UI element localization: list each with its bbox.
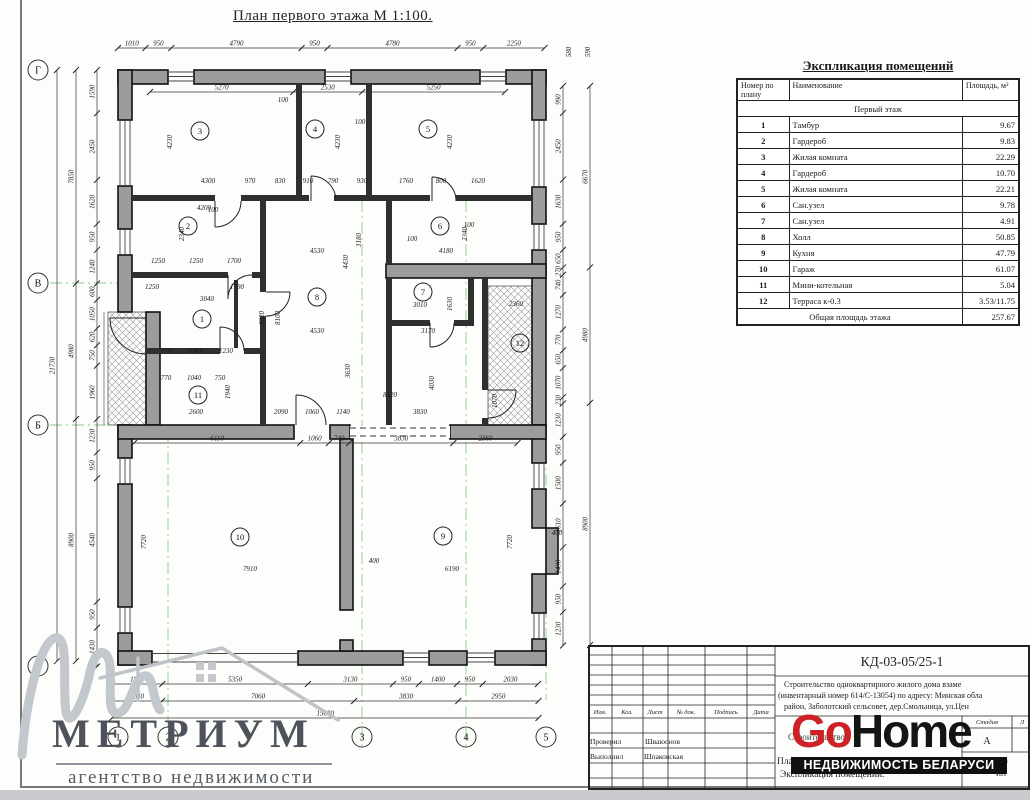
dim-label: 1050	[89, 307, 97, 322]
dim-label: 750	[89, 350, 97, 361]
dim-label: 100	[407, 235, 418, 243]
project-desc-line2: (инвентарный номер 614/С-13054) по адрес…	[778, 691, 983, 700]
dim-label: 8900	[68, 533, 76, 548]
table-row: 11Мини-котельная5.04	[737, 277, 1019, 293]
gohome-go-text: Go	[791, 705, 851, 757]
dim-label: 2340	[461, 227, 469, 242]
table-row: 2Гардероб9.83	[737, 133, 1019, 149]
dim-label: 950	[89, 460, 97, 471]
dim-label: 990	[555, 94, 563, 105]
dim-label: 4530	[310, 327, 325, 335]
dim-label: 4	[464, 733, 469, 744]
dim-label: 770	[555, 334, 563, 345]
dim-label: 7720	[140, 535, 148, 550]
dim-label: 2450	[555, 139, 563, 154]
dim-label: 8900	[582, 516, 590, 531]
dim-label: 6110	[210, 435, 224, 443]
dim-label: 740	[555, 279, 563, 290]
dim-label: 1250	[145, 283, 160, 291]
dim-label: 650	[555, 253, 563, 264]
dim-label: 1040	[187, 374, 202, 382]
table-row: 1Тамбур9.67	[737, 117, 1019, 133]
dim-label: 1790	[230, 283, 245, 291]
section-row: Первый этаж	[737, 101, 1019, 117]
dim-label: 6	[438, 221, 442, 231]
dim-label: 1250	[151, 257, 166, 265]
dim-label: 970	[245, 177, 256, 185]
dim-label: 5	[544, 733, 549, 744]
dim-label: Г	[35, 66, 41, 77]
table-row: 8Холл50.85	[737, 229, 1019, 245]
dim-label: 1010	[125, 40, 140, 48]
dim-label: 800	[436, 177, 447, 185]
dim-label: 270	[555, 265, 563, 276]
explication-title: Экспликация помещений	[736, 58, 1020, 74]
dim-label: 950	[89, 231, 97, 242]
stamp-header-izm: Изм.	[593, 709, 607, 716]
dim-label: 400	[369, 557, 380, 565]
stage-label: Стадия	[976, 719, 998, 726]
sheet-label: Л	[1019, 719, 1025, 726]
dim-label: 2530	[321, 84, 336, 92]
dim-label: 2090	[274, 408, 289, 416]
dim-label: 3	[198, 126, 202, 136]
dim-label: 3820	[258, 311, 266, 327]
dim-label: 8120	[383, 391, 398, 399]
dim-label: 4430	[342, 255, 350, 270]
windows	[120, 72, 544, 662]
dim-label: 3180	[355, 233, 363, 249]
stamp-header-sign: Подпись	[713, 709, 738, 716]
dim-label: 8100	[274, 311, 282, 326]
dim-label: 4530	[310, 247, 325, 255]
dim-label: 750	[215, 374, 226, 382]
dim-label: 4	[313, 124, 318, 134]
table-row: 10Гараж61.07	[737, 261, 1019, 277]
stamp-header-kol: Кол.	[620, 709, 633, 716]
dim-label: 3010	[412, 301, 428, 309]
dim-label: 4200	[197, 204, 212, 212]
dim-label: 930	[357, 177, 368, 185]
dim-label: 2950	[491, 693, 506, 701]
dim-label: 1250	[189, 257, 204, 265]
dim-label: 6190	[445, 565, 460, 573]
dim-label: 3830	[412, 408, 428, 416]
dim-label: Б	[35, 421, 41, 432]
dim-label: 950	[555, 231, 563, 242]
table-row: 12Терраса к-0.33.53/11.75	[737, 293, 1019, 309]
dim-label: 2360	[478, 435, 493, 443]
stamp-made-name: Шпаковская	[644, 752, 684, 761]
dim-label: 3630	[344, 364, 352, 380]
dim-label: 7910	[243, 565, 258, 573]
stamp-made-label: Выполнил	[590, 752, 623, 761]
dim-label: 4980	[68, 344, 76, 359]
dim-label: 1230	[555, 413, 563, 428]
dim-label: 2	[186, 221, 190, 231]
dim-label: 100	[278, 96, 289, 104]
dim-label: 11	[194, 390, 202, 400]
dim-label: 4030	[428, 376, 436, 391]
dim-label: 6670	[582, 169, 590, 184]
dim-label: 1070	[491, 394, 499, 409]
drawing-sheet: План первого этажа М 1:100.	[0, 0, 1030, 800]
dim-label: 1240	[89, 259, 97, 274]
dim-label: 770	[161, 347, 172, 355]
dim-label: 12	[516, 338, 525, 348]
dim-label: 4300	[201, 177, 216, 185]
dim-label: 1500	[555, 476, 563, 491]
dim-label: 1	[200, 314, 204, 324]
gohome-tagline: НЕДВИЖИМОСТЬ БЕЛАРУСИ	[791, 757, 1007, 774]
dim-label: В	[35, 279, 42, 290]
col-header-number: Номер по плану	[737, 79, 789, 101]
dim-label: 590	[584, 46, 592, 57]
dim-label: 1060	[308, 435, 323, 443]
dim-label: 2600	[189, 408, 204, 416]
stamp-header-list: Лист	[646, 709, 663, 716]
dim-label: 1960	[89, 385, 97, 400]
dim-label: 5	[426, 124, 430, 134]
door-swings	[110, 176, 516, 425]
dim-label: 7	[421, 287, 425, 297]
col-header-area: Площадь, м²	[962, 79, 1019, 101]
dim-label: 8	[315, 292, 319, 302]
dim-label: 230	[555, 395, 563, 406]
table-row: 3Жилая комната22.29	[737, 149, 1019, 165]
stamp-checked-label: Проверил	[590, 737, 622, 746]
dim-label: 4230	[166, 135, 174, 150]
project-desc-line1: Строительство одноквартирного жилого дом…	[784, 680, 962, 689]
dim-label: 1230	[89, 428, 97, 443]
dim-label: 950	[555, 444, 563, 455]
dim-label: 910	[303, 177, 314, 185]
dim-label: 950	[465, 676, 476, 684]
dim-label: 7850	[68, 169, 76, 184]
dim-label: 5250	[427, 84, 442, 92]
dim-label: 2360	[509, 300, 524, 308]
dim-label: 3830	[398, 693, 414, 701]
dim-label: 4180	[439, 247, 454, 255]
dim-label: 740	[334, 435, 345, 443]
gohome-home-text: Home	[851, 705, 971, 757]
stamp-header-date: Дата	[752, 709, 768, 716]
metrium-divider	[56, 763, 332, 765]
dim-label: 1060	[305, 408, 320, 416]
dim-label: 1040	[187, 347, 202, 355]
dim-label: 1760	[399, 177, 414, 185]
dim-label: 4980	[582, 328, 590, 343]
table-row: 5Жилая комната22.21	[737, 181, 1019, 197]
dim-label: 4780	[385, 40, 400, 48]
gohome-logo: GoHome	[791, 708, 971, 754]
dim-label: 1230	[555, 621, 563, 636]
dim-label: 650	[555, 353, 563, 364]
stamp-checked-name: Шваюонов	[645, 737, 680, 746]
dim-label: 2450	[89, 139, 97, 154]
dim-label: 620	[89, 331, 97, 342]
dim-label: 10	[236, 532, 245, 542]
dim-label: 950	[555, 593, 563, 604]
metrium-logo-text: МЕТРИУМ	[52, 710, 315, 757]
dim-label: 1270	[555, 305, 563, 320]
stage-value: А	[983, 736, 991, 747]
dim-label: 1940	[224, 385, 232, 400]
dim-label: 950	[153, 40, 164, 48]
dim-label: 1630	[446, 297, 454, 312]
table-header-row: Номер по плану Наименование Площадь, м²	[737, 79, 1019, 101]
table-row: 4Гардероб10.70	[737, 165, 1019, 181]
dim-label: 1400	[431, 676, 446, 684]
dim-label: 950	[465, 40, 476, 48]
table-row: 7Сан.узел4.91	[737, 213, 1019, 229]
table-row: 6Сан.узел9.78	[737, 197, 1019, 213]
dim-label: 1070	[555, 375, 563, 390]
dim-label: 950	[401, 676, 412, 684]
stamp-header-doc: № док.	[676, 709, 696, 716]
dim-label: 1630	[555, 194, 563, 209]
dim-label: 1230	[219, 347, 234, 355]
dim-label: 1620	[89, 194, 97, 209]
dim-label: 21730	[49, 356, 57, 374]
dim-label: 3830	[393, 435, 409, 443]
explication-table: Номер по плану Наименование Площадь, м² …	[736, 78, 1020, 326]
metrium-subtitle: агентство недвижимости	[68, 767, 314, 789]
dim-label: 3170	[420, 327, 436, 335]
dim-label: 4230	[334, 135, 342, 150]
doc-number: КД-03-05/25-1	[861, 654, 944, 669]
dim-label: 400	[552, 529, 563, 537]
dim-label: 2030	[503, 676, 518, 684]
total-row: Общая площадь этажа 257.67	[737, 309, 1019, 326]
dim-label: 950	[309, 40, 320, 48]
dim-label: 770	[161, 374, 172, 382]
dim-label: 1430	[555, 559, 563, 574]
col-header-name: Наименование	[789, 79, 962, 101]
porch-hatch	[104, 312, 146, 425]
dim-label: 4540	[89, 533, 97, 548]
dim-label: 1140	[336, 408, 350, 416]
dim-label: 3040	[199, 295, 215, 303]
dim-label: 1590	[89, 84, 97, 99]
dim-label: 9	[441, 531, 445, 541]
dim-label: 4230	[446, 135, 454, 150]
dim-label: 100	[355, 118, 366, 126]
table-row: 9Кухня47.79	[737, 245, 1019, 261]
dim-label: 830	[275, 177, 286, 185]
dim-label: 5270	[215, 84, 230, 92]
dim-label: 1700	[227, 257, 242, 265]
dim-label: 600	[89, 286, 97, 297]
dim-label: 580	[565, 46, 573, 57]
dim-label: 1620	[471, 177, 486, 185]
dim-label: 7720	[506, 535, 514, 550]
dim-label: 2250	[507, 40, 522, 48]
dim-label: 790	[328, 177, 339, 185]
dim-label: 4790	[229, 40, 244, 48]
